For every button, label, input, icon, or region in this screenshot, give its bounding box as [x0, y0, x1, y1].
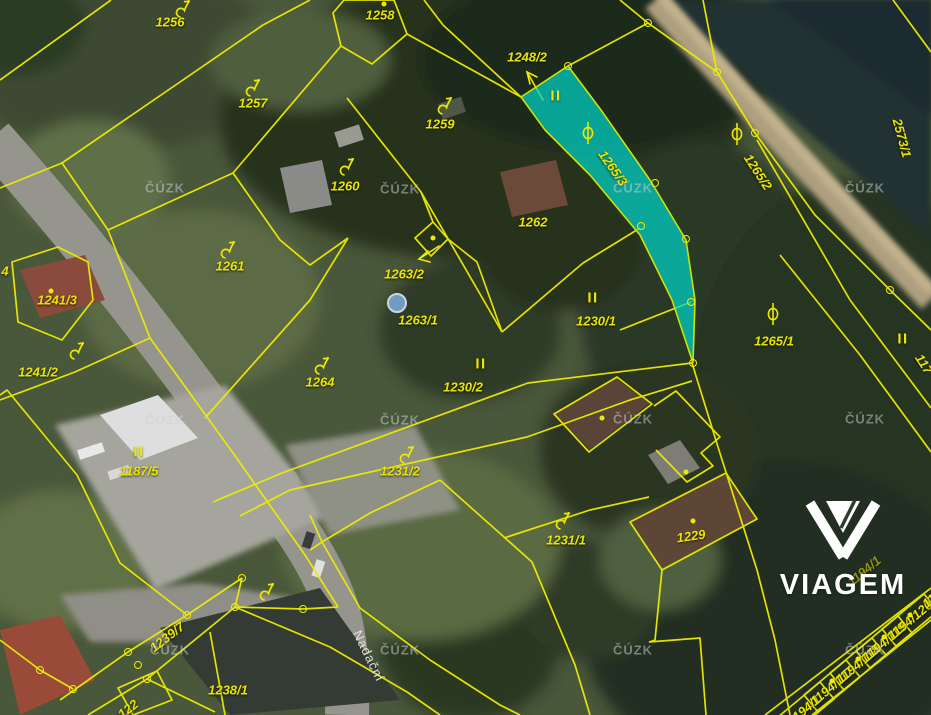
- boundary-vertex-point: [689, 359, 697, 367]
- boundary-vertex-point: [238, 574, 246, 582]
- boundary-vertex-point: [713, 68, 721, 76]
- point-marker-icon: [431, 236, 436, 241]
- point-marker-icon: [830, 679, 835, 684]
- boundary-vertex-point: [231, 603, 239, 611]
- boundary-vertex-point: [69, 685, 77, 693]
- cadastral-map-canvas[interactable]: 1256125812571248/212592573/11265/21265/3…: [0, 0, 931, 715]
- culture-symbol-icon: [312, 354, 332, 376]
- parcel-label: 1194/120: [885, 597, 931, 643]
- parcel-label: 1265/3: [595, 147, 630, 188]
- cuzk-watermark: ČÚZK: [613, 412, 653, 427]
- parcel-label: 1231/1: [546, 533, 586, 548]
- cuzk-watermark: ČÚZK: [845, 181, 885, 196]
- parcel-label: 4: [1, 264, 8, 279]
- parallel-marks-icon: II: [897, 331, 908, 348]
- cuzk-watermark: ČÚZK: [145, 413, 185, 428]
- boundary-vertex-point: [682, 235, 690, 243]
- culture-symbol-icon: [67, 339, 87, 361]
- boundary-vertex-point: [687, 298, 695, 306]
- parcel-label: 1194/119: [859, 619, 909, 664]
- parcel-label: 1187/5: [120, 464, 159, 479]
- cuzk-watermark: ČÚZK: [380, 413, 420, 428]
- parcel-label: 1194/117: [807, 663, 857, 708]
- point-marker-icon: [882, 635, 887, 640]
- parcel-label: 1241/3: [37, 293, 77, 308]
- point-marker-icon: [691, 519, 696, 524]
- point-marker-icon: [382, 2, 387, 7]
- parcel-label: 1248/2: [507, 50, 547, 65]
- culture-symbol-icon: [553, 509, 573, 531]
- cuzk-watermark: ČÚZK: [380, 182, 420, 197]
- cuzk-watermark: ČÚZK: [613, 181, 653, 196]
- parcel-label: 1230/2: [443, 380, 483, 395]
- culture-symbol-icon: [243, 76, 263, 98]
- boundary-vertex-point: [299, 605, 307, 613]
- parcel-label: 1264: [306, 375, 335, 390]
- culture-symbol-icon: [173, 0, 193, 19]
- boundary-vertex-point: [564, 62, 572, 70]
- parcel-label: 1265/2: [741, 151, 775, 193]
- parcel-label: 2573/1: [890, 117, 915, 159]
- parallel-marks-icon: II: [550, 88, 561, 105]
- boundary-vertex-point: [751, 129, 759, 137]
- point-marker-icon: [684, 470, 689, 475]
- parcel-label: 1256: [156, 15, 185, 30]
- parcel-label: 117: [912, 351, 931, 377]
- viagem-logo-icon: [804, 495, 882, 563]
- boundary-vertex-point: [134, 661, 142, 669]
- culture-symbol-icon: [257, 580, 277, 602]
- boundary-vertex-point: [124, 648, 132, 656]
- boundary-vertex-point: [143, 675, 151, 683]
- cuzk-watermark: ČÚZK: [380, 643, 420, 658]
- point-marker-icon: [600, 416, 605, 421]
- culture-symbol-icon: [337, 155, 357, 177]
- parcel-label: 1194/118: [833, 641, 883, 686]
- map-overlay-layer: 1256125812571248/212592573/11265/21265/3…: [0, 0, 931, 715]
- culture-symbol-icon: [218, 238, 238, 260]
- parcel-label: 1257: [239, 96, 268, 111]
- culture-symbol-icon: [435, 94, 455, 116]
- viagem-logo: VIAGEM: [770, 495, 916, 602]
- parcel-label: 1258: [366, 8, 395, 23]
- parcel-label: 1262: [519, 215, 548, 230]
- cuzk-watermark: ČÚZK: [145, 181, 185, 196]
- cuzk-watermark: ČÚZK: [845, 643, 885, 658]
- point-marker-icon: [49, 289, 54, 294]
- boundary-vertex-point: [36, 666, 44, 674]
- boundary-vertex-point: [637, 222, 645, 230]
- boundary-vertex-point: [644, 19, 652, 27]
- cuzk-watermark: ČÚZK: [613, 643, 653, 658]
- parcel-label: 1230/1: [576, 314, 616, 329]
- parcel-label: 11: [919, 591, 931, 611]
- parcel-label: 122: [115, 696, 141, 715]
- parallel-marks-icon: II: [133, 444, 144, 461]
- boundary-vertex-point: [651, 179, 659, 187]
- boundary-vertex-point: [183, 611, 191, 619]
- parcel-label: 1231/2: [380, 464, 420, 479]
- boundary-symbol-icon: [581, 122, 595, 144]
- boundary-vertex-point: [886, 286, 894, 294]
- point-marker-icon: [856, 657, 861, 662]
- parcel-label: 1239/7: [147, 619, 188, 655]
- parcel-label: 1260: [331, 179, 360, 194]
- parcel-label: 1238/1: [208, 683, 248, 698]
- parallel-marks-icon: II: [475, 356, 486, 373]
- cuzk-watermark: ČÚZK: [150, 643, 190, 658]
- boundary-symbol-icon: [766, 303, 780, 325]
- culture-symbol-icon: [397, 443, 417, 465]
- parcel-label: 1194/1: [784, 692, 823, 715]
- parcel-label: 1229: [676, 527, 707, 546]
- parcel-label: 1241/2: [18, 365, 58, 380]
- parcel-label: 1263/2: [384, 267, 424, 282]
- parcel-label: 1265/1: [754, 334, 794, 349]
- viagem-logo-text: VIAGEM: [770, 569, 916, 602]
- parcel-label: 1261: [216, 259, 245, 274]
- parcel-label: 1263/1: [398, 313, 438, 328]
- parallel-marks-icon: II: [587, 290, 598, 307]
- cuzk-watermark: ČÚZK: [845, 412, 885, 427]
- parcel-label: 1259: [426, 117, 455, 132]
- point-marker-icon: [908, 613, 913, 618]
- boundary-symbol-icon: [730, 123, 744, 145]
